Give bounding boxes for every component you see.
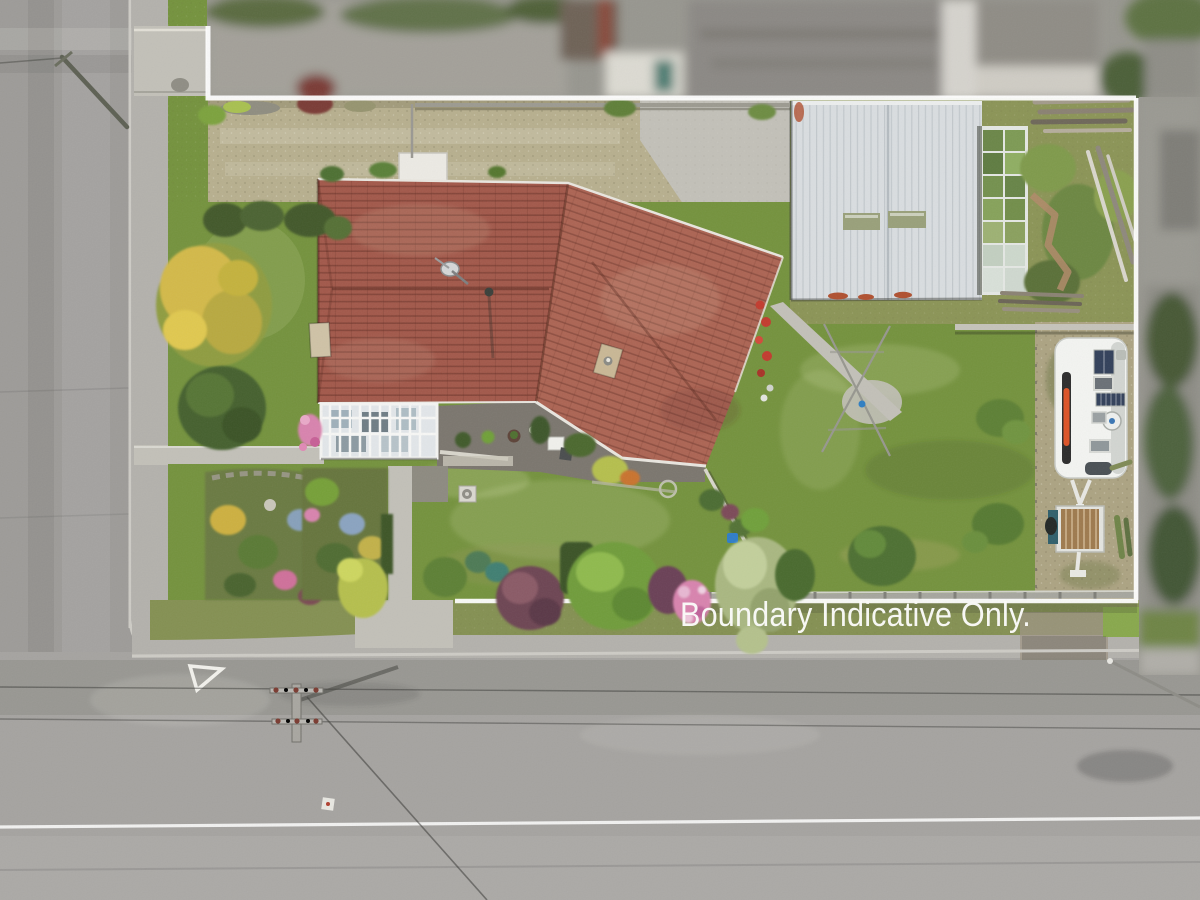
aerial-scene xyxy=(0,0,1200,900)
boundary-disclaimer-text: Boundary Indicative Only. xyxy=(680,598,1031,632)
aerial-property-photo: Boundary Indicative Only. xyxy=(0,0,1200,900)
photo-grain xyxy=(0,0,1200,900)
